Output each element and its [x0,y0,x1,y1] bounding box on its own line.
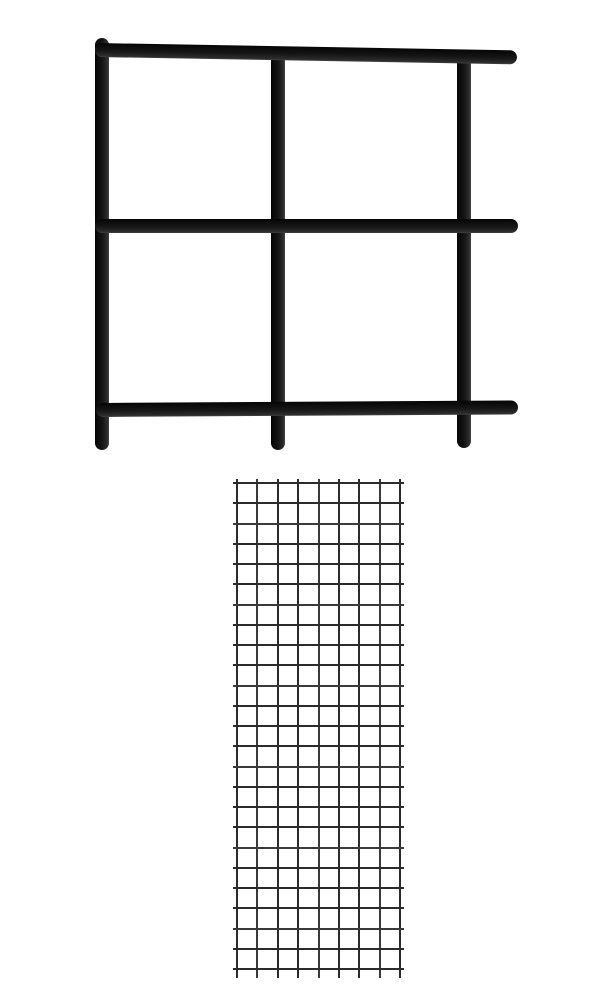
mesh-horizontal-wire [233,847,404,849]
product-image-canvas [0,0,600,1000]
mesh-horizontal-wire [233,543,404,545]
mesh-horizontal-wire [233,786,404,788]
mesh-horizontal-wire [233,563,404,565]
mesh-horizontal-wire [233,907,404,909]
mesh-vertical-wire [379,479,381,978]
mesh-horizontal-wire [233,664,404,666]
mesh-vertical-wire [236,479,238,978]
mesh-horizontal-wire [233,806,404,808]
mesh-horizontal-wire [233,948,404,950]
mesh-horizontal-wire [233,887,404,889]
wire-mesh-panel-image [0,0,600,1000]
mesh-vertical-wire [256,479,258,978]
mesh-horizontal-wire [233,624,404,626]
mesh-horizontal-wire [233,523,404,525]
mesh-horizontal-wire [233,766,404,768]
mesh-vertical-wire [277,479,279,978]
mesh-horizontal-wire [233,604,404,606]
mesh-horizontal-wire [233,482,404,484]
mesh-horizontal-wire [233,867,404,869]
mesh-horizontal-wire [233,928,404,930]
mesh-horizontal-wire [233,745,404,747]
mesh-horizontal-wire [233,502,404,504]
mesh-horizontal-wire [233,644,404,646]
mesh-vertical-wire [399,479,401,978]
mesh-horizontal-wire [233,826,404,828]
mesh-horizontal-wire [233,705,404,707]
mesh-vertical-wire [338,479,340,978]
mesh-horizontal-wire [233,968,404,970]
mesh-horizontal-wire [233,685,404,687]
mesh-vertical-wire [297,479,299,978]
mesh-horizontal-wire [233,725,404,727]
mesh-vertical-wire [358,479,360,978]
mesh-vertical-wire [318,479,320,978]
mesh-horizontal-wire [233,583,404,585]
